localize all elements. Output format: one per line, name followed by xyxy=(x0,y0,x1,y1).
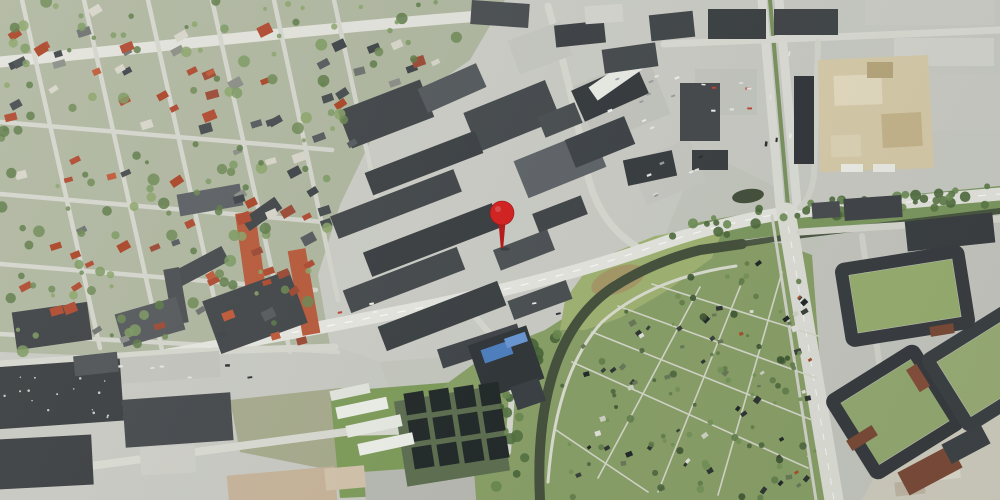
satellite-map[interactable] xyxy=(0,0,1000,500)
aerial-imagery xyxy=(0,0,1000,500)
